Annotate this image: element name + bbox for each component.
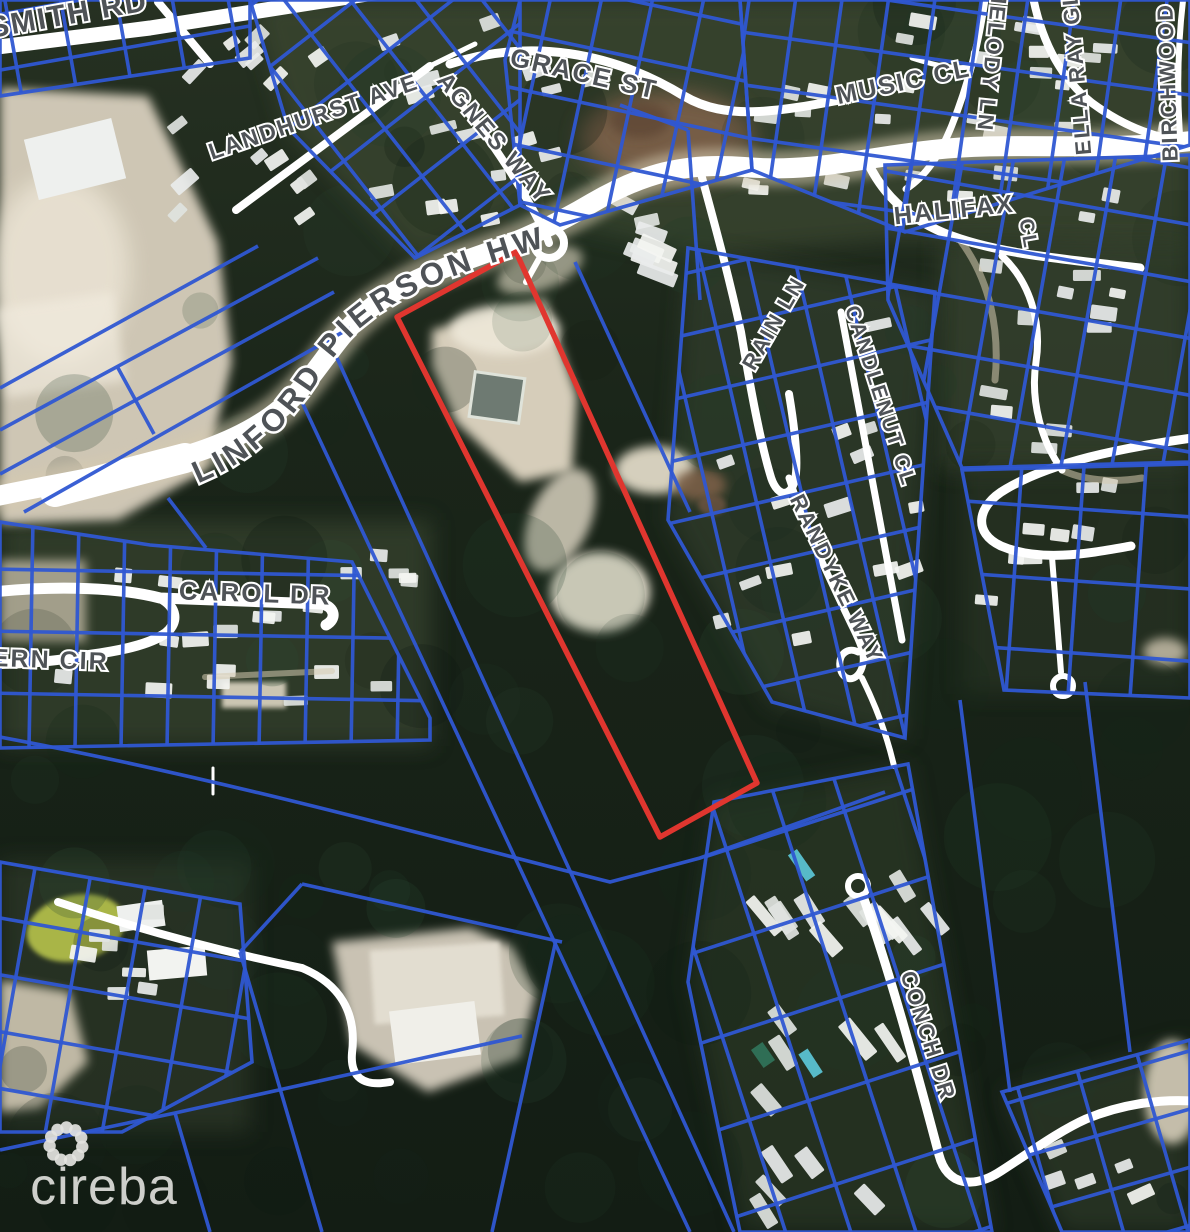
street-label-carol-dr: CAROL DR xyxy=(178,575,332,610)
quarry-building xyxy=(469,372,525,424)
street-label-ern-cir: ERN CIR xyxy=(0,644,109,676)
cireba-wordmark: cireba xyxy=(30,1158,178,1216)
map-canvas: SMITH RD GRACE ST LANDHURST AVE AGNES WA… xyxy=(0,0,1190,1232)
satellite-map[interactable]: SMITH RD GRACE ST LANDHURST AVE AGNES WA… xyxy=(0,0,1190,1232)
